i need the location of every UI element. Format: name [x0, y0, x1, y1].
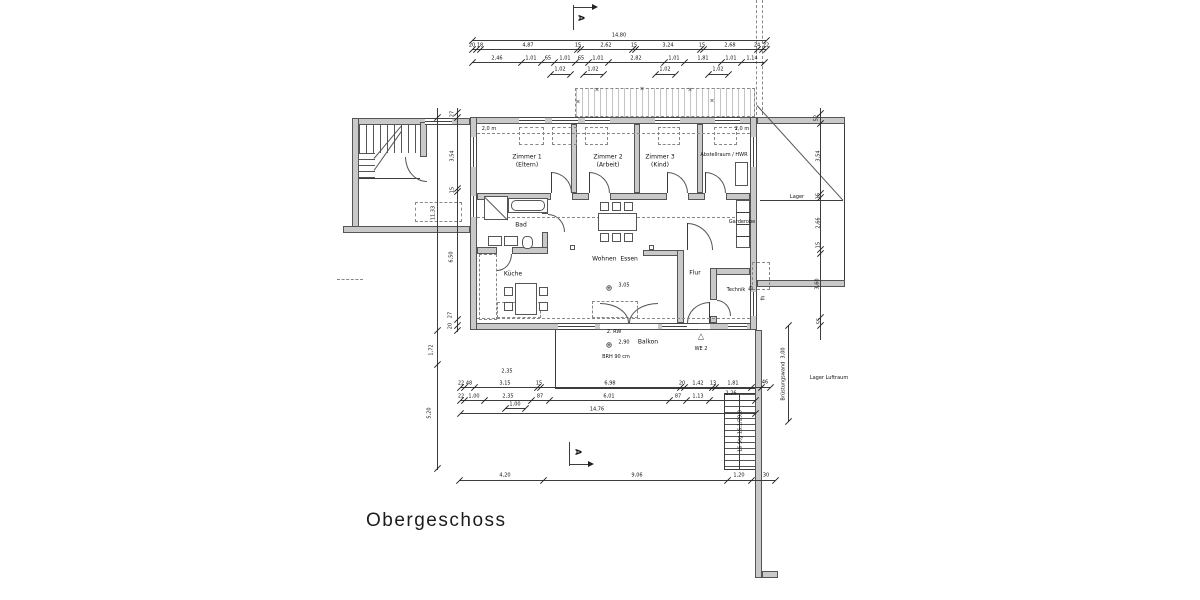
dim-tick: [600, 71, 607, 78]
dim-label: 2,35: [502, 394, 513, 400]
annotation-second-escape: 2. RW: [607, 329, 622, 335]
window: [728, 323, 747, 330]
dim-label: 1,01: [525, 56, 536, 62]
wall: [710, 268, 717, 300]
dim-label: 2,46: [491, 56, 502, 62]
room-label-bad: Bad: [515, 221, 527, 229]
kitchen-counter-outline: [479, 254, 497, 320]
bathtub-inner: [511, 200, 545, 211]
roof-window-outline: [658, 127, 680, 145]
dim-tick: [567, 71, 574, 78]
door-swing-arc: [687, 223, 713, 250]
window: [552, 117, 578, 124]
dim-label: 1,42: [692, 381, 703, 387]
roof-mark-icon: ×: [594, 88, 599, 95]
room-label-abstellraum: Abstellraum / HWR: [700, 152, 747, 158]
room-label-zimmer3: Zimmer 3: [645, 153, 674, 161]
door-leaf: [551, 172, 552, 193]
dimension-line: [437, 108, 438, 470]
dim-label: 1,02: [659, 67, 670, 73]
window: [655, 117, 680, 124]
balcony-edge-line: [555, 388, 755, 389]
wall: [477, 247, 497, 254]
dim-label: 1,72: [429, 344, 435, 355]
section-arrow-icon: [588, 461, 594, 467]
balcony-edge-line: [555, 330, 556, 389]
dim-label: 1,00: [509, 402, 520, 408]
dim-label: 6,98: [604, 381, 615, 387]
door-swing-arc: [497, 254, 512, 271]
wall: [420, 122, 427, 157]
chair: [539, 287, 548, 296]
section-line: [573, 5, 574, 30]
dim-label: 4,20: [499, 473, 510, 479]
dim-label: 14,80: [612, 33, 626, 39]
dim-label: 1,01: [592, 56, 603, 62]
dim-label: 1,01: [559, 56, 570, 62]
room-label-zimmer1: Zimmer 1: [512, 153, 541, 161]
window: [470, 196, 477, 217]
room-sublabel-zimmer2: (Arbeit): [597, 161, 620, 169]
dim-label: 3,60: [815, 278, 821, 289]
dim-label: 1,02: [587, 67, 598, 73]
wall: [726, 193, 750, 200]
dim-label: 4,87: [522, 43, 533, 49]
wall: [757, 280, 845, 287]
wall: [677, 250, 684, 323]
door-leaf: [705, 172, 706, 193]
window: [750, 292, 757, 316]
wall: [634, 124, 640, 193]
chair: [539, 302, 548, 311]
dim-tick: [772, 477, 779, 484]
chair: [624, 233, 633, 242]
door-swing-arc: [705, 172, 726, 193]
dim-tick: [672, 71, 679, 78]
dim-label: 1,00: [468, 394, 479, 400]
roof-overhang-outline: [575, 88, 755, 117]
dim-label: 1,01: [668, 56, 679, 62]
window: [470, 137, 477, 167]
sink: [488, 236, 502, 246]
wall: [572, 193, 589, 200]
site-boundary-line: [762, 0, 763, 115]
room-label-kueche: Küche: [504, 270, 522, 278]
height-line-label: 2,0 m: [735, 126, 749, 132]
dim-label: 87: [675, 394, 681, 400]
dim-tick: [725, 71, 732, 78]
stair-edge-line: [359, 178, 420, 179]
dim-label: 9,06: [631, 473, 642, 479]
roof-mark-icon: ×: [687, 88, 692, 95]
window: [425, 118, 452, 125]
chair: [612, 233, 621, 242]
room-label-technik: Technik: [727, 287, 746, 293]
dim-tick: [522, 405, 529, 412]
dim-label: 1,02: [712, 67, 723, 73]
dimension-line: [583, 74, 603, 75]
door-leaf: [667, 172, 668, 193]
roof-base-line: [760, 200, 843, 201]
dim-label: 1,20: [733, 473, 744, 479]
level-marker-icon: ⊕: [606, 342, 613, 351]
section-line: [574, 7, 592, 8]
wall-note: Brüstungswand 3,00: [781, 347, 787, 400]
dim-label: 6,01: [603, 394, 614, 400]
section-marker-label: A: [576, 15, 585, 21]
wall: [762, 571, 778, 578]
floor-plan: × × × × × 16 Stg 1: [0, 0, 1200, 600]
wall: [697, 124, 703, 193]
stair-note: 16 Stg 16,1/29,0: [738, 410, 744, 452]
room-label-balkon: Balkon: [638, 338, 658, 346]
kitchen-table: [515, 283, 537, 315]
section-line: [570, 464, 588, 465]
page-title: Obergeschoss: [366, 510, 507, 532]
wall: [610, 193, 667, 200]
chair: [624, 202, 633, 211]
section-marker-label: A: [573, 449, 582, 455]
annotation-fh: fh: [749, 286, 755, 291]
dim-label: 1,13: [692, 394, 703, 400]
wall: [470, 117, 757, 124]
door-swing-arc: [717, 300, 731, 316]
dashed-opening-outline: [415, 202, 462, 222]
dim-label: 3,15: [499, 381, 510, 387]
dimension-line: [460, 413, 755, 414]
dim-label: 2,68: [724, 43, 735, 49]
window: [519, 117, 545, 124]
chair: [504, 302, 513, 311]
room-sublabel-zimmer1: (Eltern): [516, 161, 538, 169]
roof-window-outline: [552, 127, 577, 145]
dining-table: [598, 213, 637, 231]
dim-label: 1,02: [554, 67, 565, 73]
room-label-wohnen-essen: Wohnen Essen: [592, 255, 638, 263]
height-reference-line: [477, 318, 750, 319]
wall: [688, 193, 705, 200]
dimension-line: [460, 387, 770, 388]
apartment-triangle-icon: △: [698, 333, 704, 342]
window: [558, 323, 595, 330]
dim-tick: [785, 418, 792, 425]
height-reference-line: [477, 133, 750, 134]
dimension-line: [655, 74, 675, 75]
dim-label: 1,81: [697, 56, 708, 62]
dim-label: 2,62: [600, 43, 611, 49]
room-label-lager: Lager: [790, 194, 804, 200]
window: [750, 137, 757, 167]
dim-label: 14,76: [590, 407, 604, 413]
dimension-line: [472, 49, 766, 50]
level-value: 2,90: [618, 340, 629, 346]
roof-mark-icon: ×: [575, 100, 580, 107]
column: [649, 245, 654, 250]
dim-label: 1,81: [727, 381, 738, 387]
building-edge-line: [844, 124, 845, 280]
dim-label: 1,01: [725, 56, 736, 62]
dim-label: 5,20: [427, 407, 433, 418]
section-line: [569, 442, 570, 466]
room-label-garderobe: Garderobe: [729, 219, 755, 225]
annotation-fh: fh: [761, 296, 767, 301]
toilet: [522, 236, 533, 249]
roof-window-outline: [714, 127, 737, 145]
door-opening: [687, 324, 710, 329]
dimension-line: [505, 408, 525, 409]
door-leaf: [709, 302, 710, 323]
dim-label: 2,66: [816, 217, 822, 228]
dimension-line: [472, 40, 766, 41]
section-arrow-icon: [592, 4, 598, 10]
chair: [612, 202, 621, 211]
room-sublabel-zimmer3: (Kind): [651, 161, 669, 169]
window: [585, 117, 610, 124]
dimension-line: [788, 325, 789, 422]
roof-window-outline: [519, 127, 544, 145]
wall: [352, 118, 359, 233]
dim-label: 2,82: [630, 56, 641, 62]
door-swing-arc: [667, 172, 688, 193]
roof-window-outline: [585, 127, 608, 145]
dim-label: 2,35: [501, 369, 512, 375]
door-leaf: [687, 223, 688, 250]
door-leaf: [589, 172, 590, 193]
chair: [600, 202, 609, 211]
dim-tick: [434, 465, 441, 472]
dim-label: 65: [545, 56, 551, 62]
column: [570, 245, 575, 250]
dim-label: 30: [763, 473, 769, 479]
annotation-unit: WE 2: [695, 346, 708, 352]
center-line-mark: [337, 279, 363, 280]
room-label-zimmer2: Zimmer 2: [593, 153, 622, 161]
chair: [504, 287, 513, 296]
wall: [352, 118, 470, 125]
dimension-line: [550, 74, 570, 75]
wardrobe-shelf-line: [736, 212, 750, 213]
appliance: [735, 162, 748, 186]
room-label-flur: Flur: [689, 269, 700, 277]
annotation-parapet: BRH 90 cm: [602, 354, 630, 360]
level-value: 3,05: [618, 283, 629, 289]
dimension-line: [457, 108, 458, 332]
door-swing-arc: [551, 172, 572, 193]
level-marker-icon: ⊕: [606, 285, 613, 294]
dim-label: 11,33: [431, 206, 437, 220]
dim-label: 3,24: [662, 43, 673, 49]
dimension-line: [460, 400, 755, 401]
dim-label: 27: [448, 312, 454, 318]
room-label-lager-luftraum: Lager Luftraum: [810, 375, 848, 381]
dim-label: 1,14: [746, 56, 757, 62]
sink: [504, 236, 518, 246]
dim-label: 87: [537, 394, 543, 400]
dim-label: 2,26: [725, 391, 736, 397]
wall: [755, 330, 762, 578]
door-swing-arc: [687, 302, 710, 323]
roof-mark-icon: ×: [709, 99, 714, 106]
wall: [343, 226, 470, 233]
chair: [600, 233, 609, 242]
door-swing-arc: [589, 172, 610, 193]
height-line-label: 2,0 m: [482, 126, 496, 132]
dim-label: 3,54: [450, 150, 456, 161]
dim-label: 6,50: [449, 251, 455, 262]
wardrobe-shelf-line: [736, 236, 750, 237]
dim-label: 3,54: [816, 150, 822, 161]
roof-mark-icon: ×: [639, 87, 644, 94]
window: [715, 117, 740, 124]
dimension-line: [708, 74, 728, 75]
